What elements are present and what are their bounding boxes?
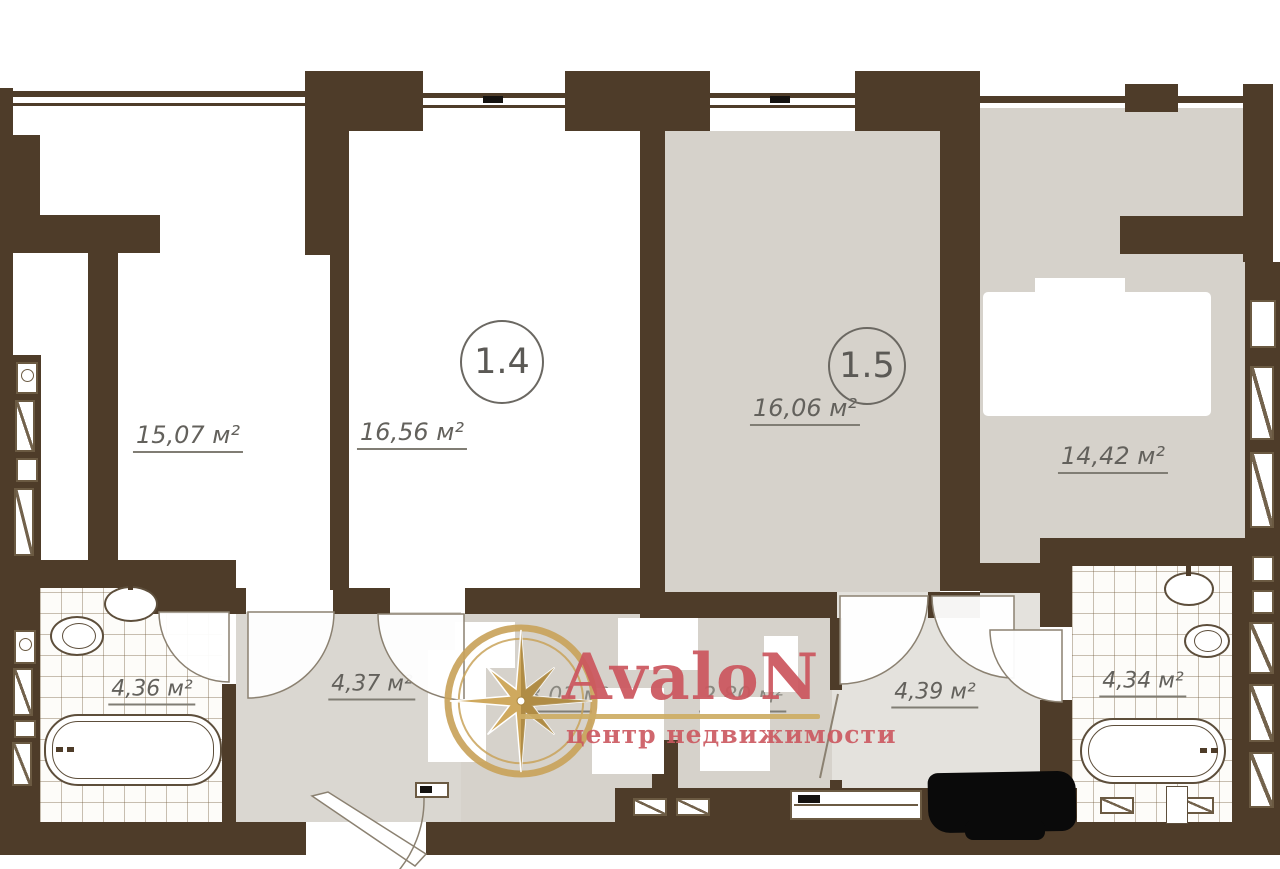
window-tick	[420, 786, 432, 793]
vent-shaft-dot	[19, 638, 32, 651]
vent-shaft-cell	[1100, 797, 1134, 814]
vent-shaft-cell	[13, 668, 33, 716]
wall-segment	[13, 215, 160, 253]
vent-shaft-cell	[1249, 752, 1274, 808]
vent-shaft-cell	[1252, 590, 1274, 614]
wall-segment	[465, 588, 640, 614]
room-1-4-area-label: 16,56 м²	[357, 418, 467, 446]
vent-shaft-cell	[1249, 622, 1274, 674]
wall-segment	[1243, 84, 1273, 262]
wall-segment	[40, 560, 232, 588]
bathtub-inner-icon	[1088, 725, 1218, 777]
watermark-tagline: центр недвижимости	[566, 722, 897, 747]
floor-room-right-ext	[980, 540, 1042, 564]
toilet-bowl-icon	[62, 623, 96, 649]
window-tick	[483, 96, 503, 103]
floor-plan: 15,07 м² 16,56 м² 16,06 м² 14,42 м² 4,36…	[0, 0, 1280, 869]
window	[794, 804, 918, 806]
vent-shaft-cell	[16, 458, 38, 482]
wall-segment	[1040, 566, 1072, 627]
vent-shaft-cell	[12, 742, 32, 786]
wall-segment	[928, 592, 980, 618]
entry-door-opening	[306, 822, 426, 855]
vent-shaft-cell	[14, 488, 34, 556]
hall-right-area-label: 4,39 м²	[891, 680, 978, 705]
bath-left-area-label: 4,36 м²	[108, 677, 195, 702]
vent-shaft-cell	[15, 400, 35, 452]
sink-tap-icon	[128, 580, 133, 590]
sink-tap-icon	[1186, 566, 1191, 576]
room-right-area-label: 14,42 м²	[1058, 442, 1168, 470]
wall-segment	[565, 71, 710, 131]
wall-segment	[980, 96, 1243, 103]
wall-segment	[665, 592, 837, 618]
bathtub-tap-icon	[1200, 748, 1207, 753]
bathtub-tap-icon	[67, 747, 74, 752]
wall-segment	[333, 588, 390, 614]
bathtub-inner-icon	[52, 721, 214, 779]
bathtub-tap-icon	[56, 747, 63, 752]
window	[423, 105, 565, 108]
sink-icon	[1164, 572, 1214, 606]
wall-segment	[8, 103, 306, 106]
whiteout-patch	[1035, 278, 1125, 300]
wall-segment	[1125, 84, 1178, 112]
wall-segment	[0, 135, 40, 217]
hall-main-area-label: 4,37 м²	[328, 672, 415, 697]
room-a-area-label: 15,07 м²	[133, 421, 243, 449]
wall-segment	[305, 71, 349, 255]
room-1-5-number-badge: 1.5	[828, 327, 906, 405]
bath-right-area-label: 4,34 м²	[1099, 669, 1186, 694]
vent-shaft-cell	[633, 798, 667, 816]
vent-shaft-cell	[14, 720, 36, 738]
wall-segment	[855, 71, 980, 131]
toilet-bowl-icon	[1194, 630, 1222, 652]
room-1-5-area-label: 16,06 м²	[750, 394, 860, 422]
bath-pedestal-icon	[1166, 786, 1188, 824]
vent-shaft-cell	[1249, 684, 1274, 742]
vent-shaft-cell	[1250, 300, 1276, 348]
vent-shaft-cell	[1250, 452, 1274, 528]
vent-shaft-cell	[1252, 556, 1274, 582]
wall-segment	[940, 131, 980, 591]
wall-segment	[330, 255, 349, 590]
wall-segment	[88, 253, 118, 565]
whiteout-patch	[983, 292, 1211, 416]
window	[710, 105, 855, 108]
redaction-blob	[965, 820, 1045, 840]
wall-segment	[640, 131, 665, 647]
wall-segment	[8, 91, 306, 97]
wall-segment	[1040, 538, 1243, 566]
wall-segment	[1232, 538, 1245, 855]
wall-segment	[830, 618, 842, 690]
wall-segment	[1120, 216, 1243, 254]
watermark-brand: AvaloN	[562, 646, 819, 710]
bathtub-tap-icon	[1211, 748, 1218, 753]
window-tick	[770, 96, 790, 103]
wall-segment	[0, 822, 1280, 855]
room-1-4-number-badge: 1.4	[460, 320, 544, 404]
window-tick	[798, 795, 820, 803]
vent-shaft-cell	[676, 798, 710, 816]
vent-shaft-cell	[1250, 366, 1274, 440]
sink-icon	[104, 586, 158, 622]
vent-shaft-dot	[21, 369, 34, 382]
wall-segment	[980, 563, 1042, 593]
